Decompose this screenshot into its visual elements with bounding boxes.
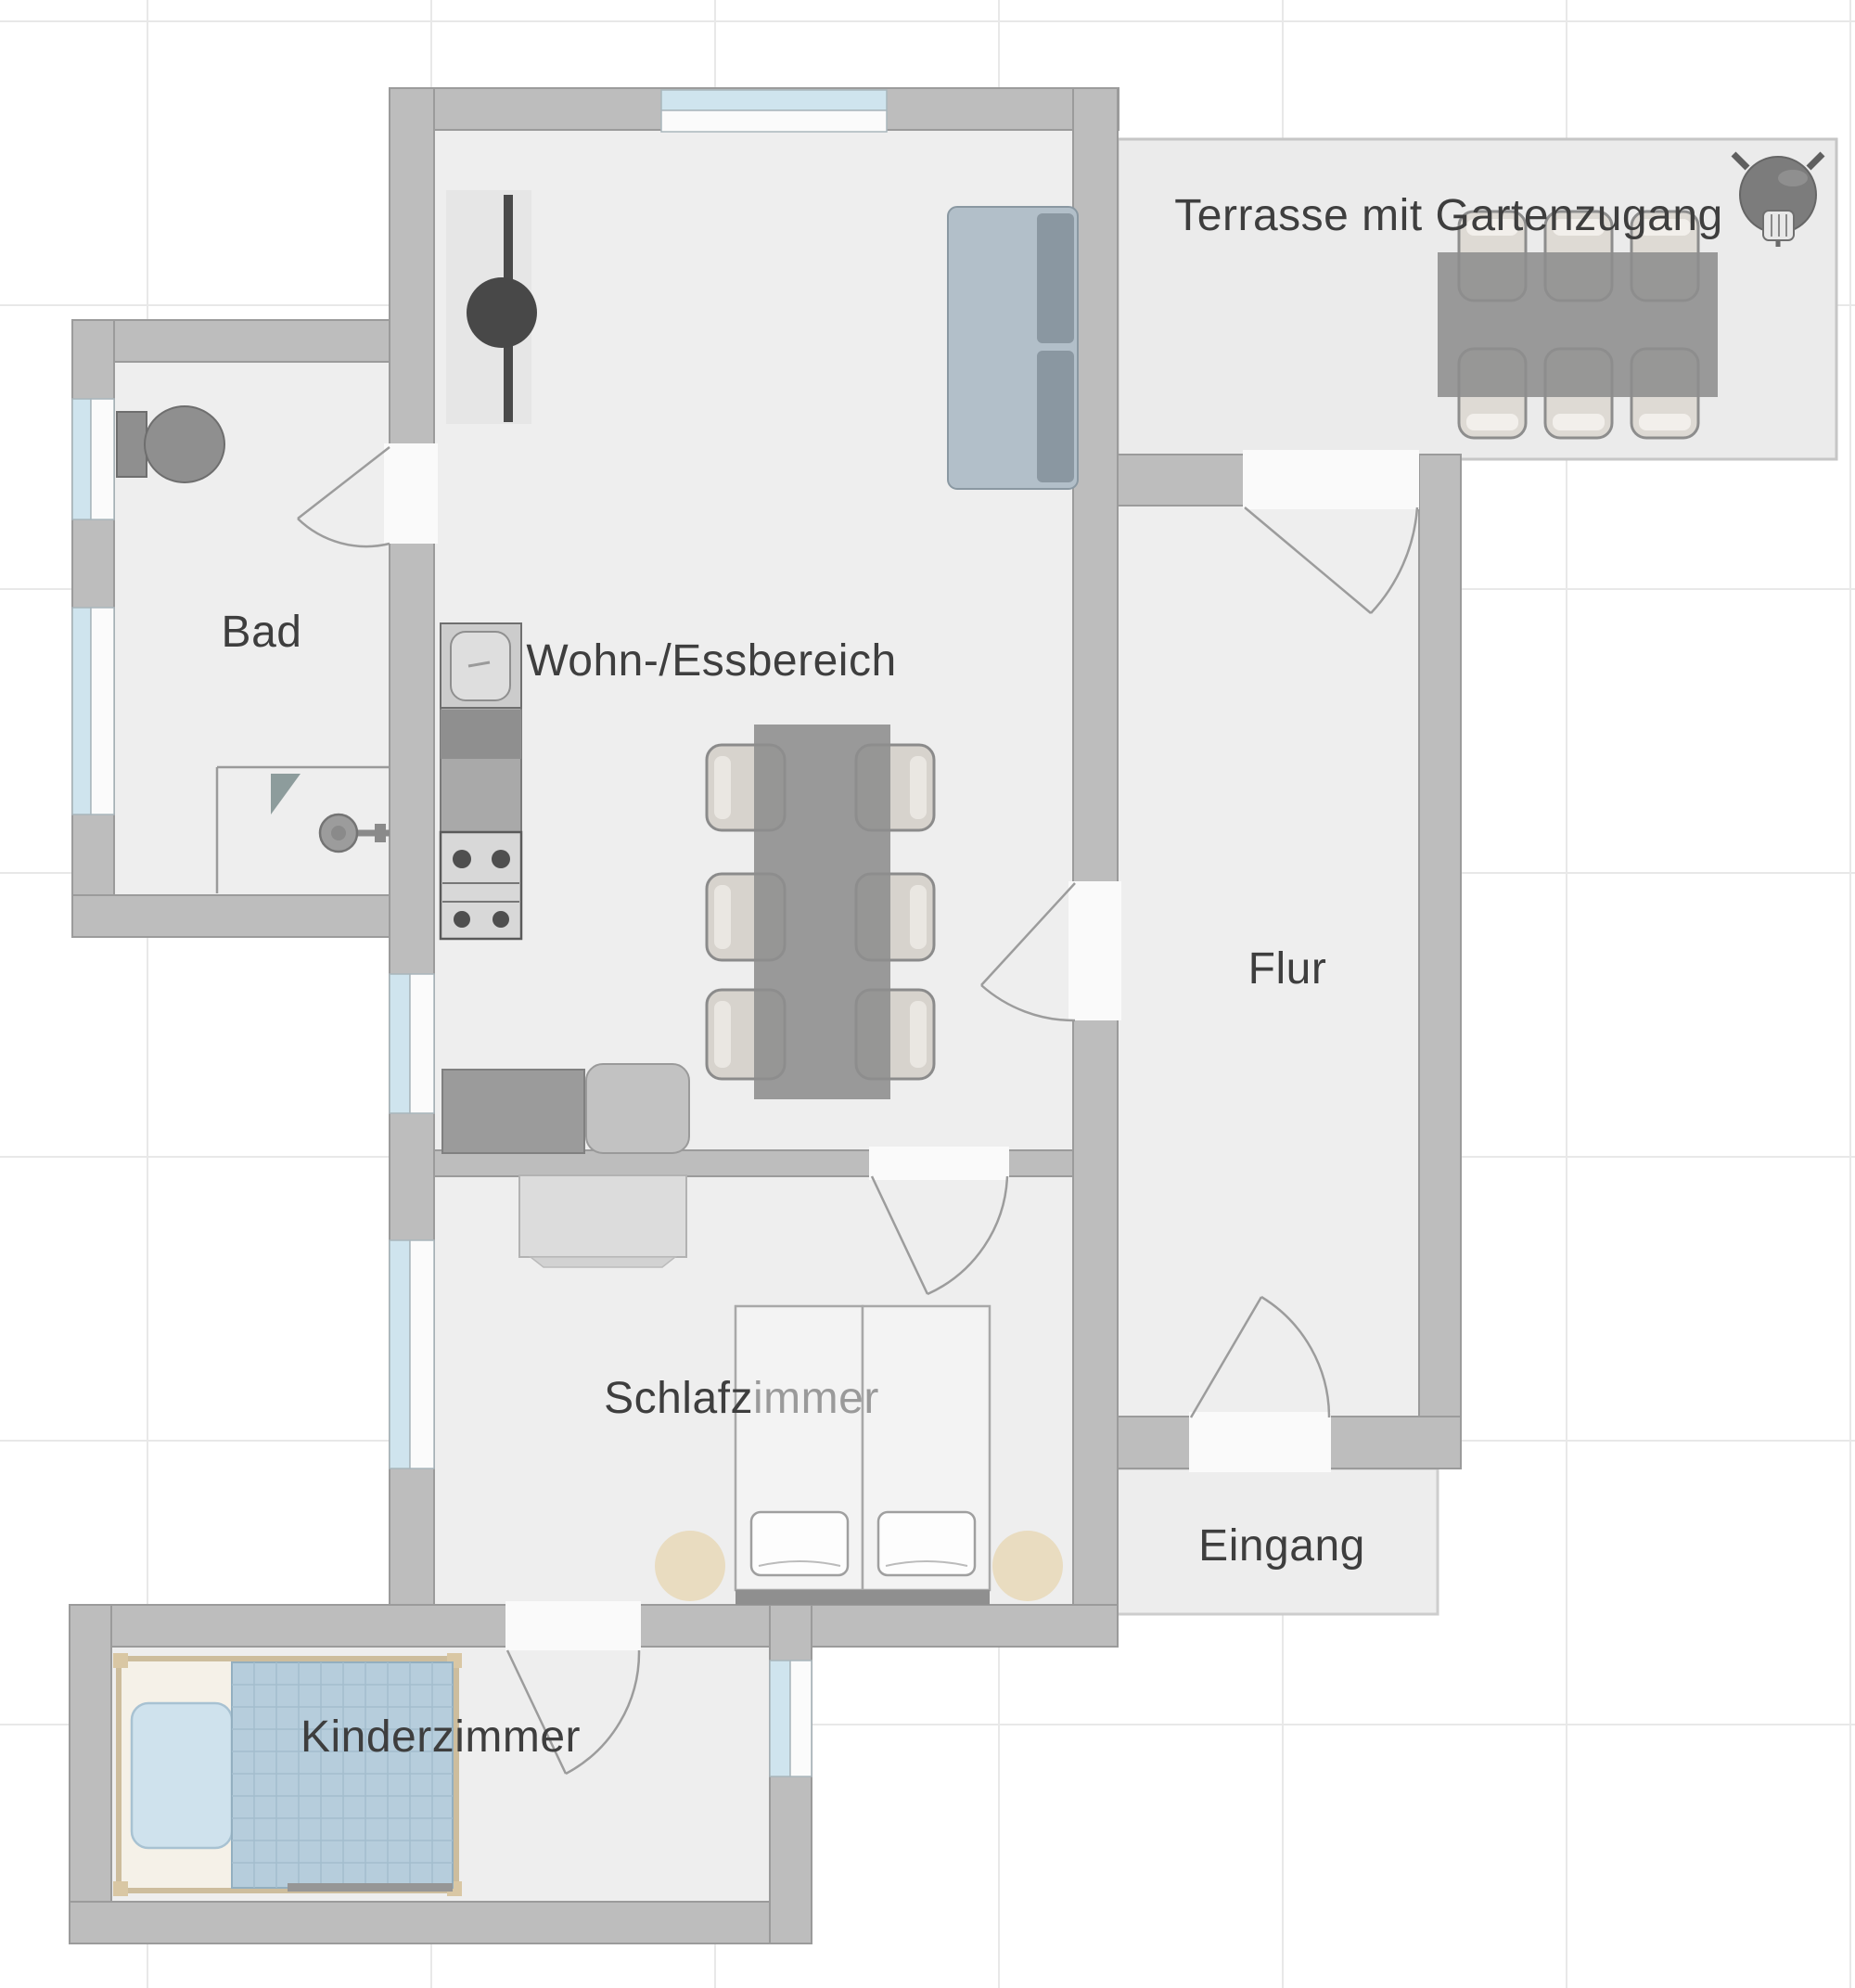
floorplan-drawing: Terrasse mit Gartenzugang Wohn-/Essberei… — [0, 0, 1855, 1988]
wall-kinder-left — [70, 1605, 111, 1943]
bed-post — [113, 1881, 128, 1896]
outdoor-dining-table — [1438, 252, 1718, 397]
wall-bad-top — [72, 320, 390, 362]
room-label-schlafzimmer-light: immer — [753, 1374, 879, 1423]
kitchen-appliance — [441, 710, 521, 759]
room-label-flur: Flur — [1248, 944, 1327, 994]
wall-bad-bottom — [72, 895, 390, 937]
double-bed — [736, 1306, 990, 1605]
kids-bed — [113, 1653, 462, 1896]
door-opening-terrasse-flur — [1243, 450, 1419, 509]
floorplan-canvas: Terrasse mit Gartenzugang Wohn-/Essberei… — [0, 0, 1855, 1988]
tv-speaker — [467, 277, 537, 348]
stove-4-burners — [441, 832, 521, 939]
kids-pillow — [132, 1703, 232, 1848]
wall-kinder-bottom — [70, 1902, 812, 1943]
pillow-right — [878, 1512, 975, 1575]
bed-footboard — [736, 1590, 990, 1605]
room-label-terrasse: Terrasse mit Gartenzugang — [1174, 191, 1722, 240]
wall-flur-right — [1419, 455, 1461, 1469]
round-rug-right — [992, 1531, 1063, 1601]
kitchenette — [441, 623, 521, 939]
door-opening-schlaf-kinder — [505, 1601, 641, 1650]
window-wohn-top — [661, 90, 887, 132]
door-opening-eingang-flur — [1189, 1412, 1331, 1472]
door-opening-wohn-schlaf — [869, 1147, 1009, 1180]
room-label-bad: Bad — [222, 608, 302, 657]
room-label-schlafzimmer-dark: Schlafz — [604, 1374, 753, 1423]
kitchen-sink-basin — [451, 632, 510, 700]
pillow-left — [751, 1512, 848, 1575]
window-bad-left-bottom — [72, 608, 114, 814]
room-label-wohn: Wohn-/Essbereich — [526, 636, 896, 686]
sideboard — [442, 1070, 584, 1153]
window-kinderzimmer-right — [770, 1661, 812, 1776]
round-rug-left — [655, 1531, 725, 1601]
window-wohn-left — [390, 974, 434, 1113]
sofa — [948, 207, 1078, 489]
door-opening-bad — [384, 443, 438, 544]
kinderzimmer-furniture — [113, 1653, 462, 1896]
door-opening-wohn-flur — [1068, 881, 1121, 1020]
window-bad-left-top — [72, 399, 114, 519]
toilet — [117, 406, 224, 482]
window-schlafzimmer-left — [390, 1240, 434, 1469]
room-label-kinderzimmer: Kinderzimmer — [301, 1712, 581, 1762]
wardrobe — [519, 1175, 686, 1267]
tv-unit — [446, 190, 537, 424]
wall-east-of-wohn — [1073, 88, 1118, 1647]
room-label-eingang: Eingang — [1198, 1521, 1365, 1571]
dining-table — [754, 725, 890, 1099]
plaid-blanket — [232, 1662, 453, 1892]
armchair — [586, 1064, 689, 1153]
bed-post — [113, 1653, 128, 1668]
